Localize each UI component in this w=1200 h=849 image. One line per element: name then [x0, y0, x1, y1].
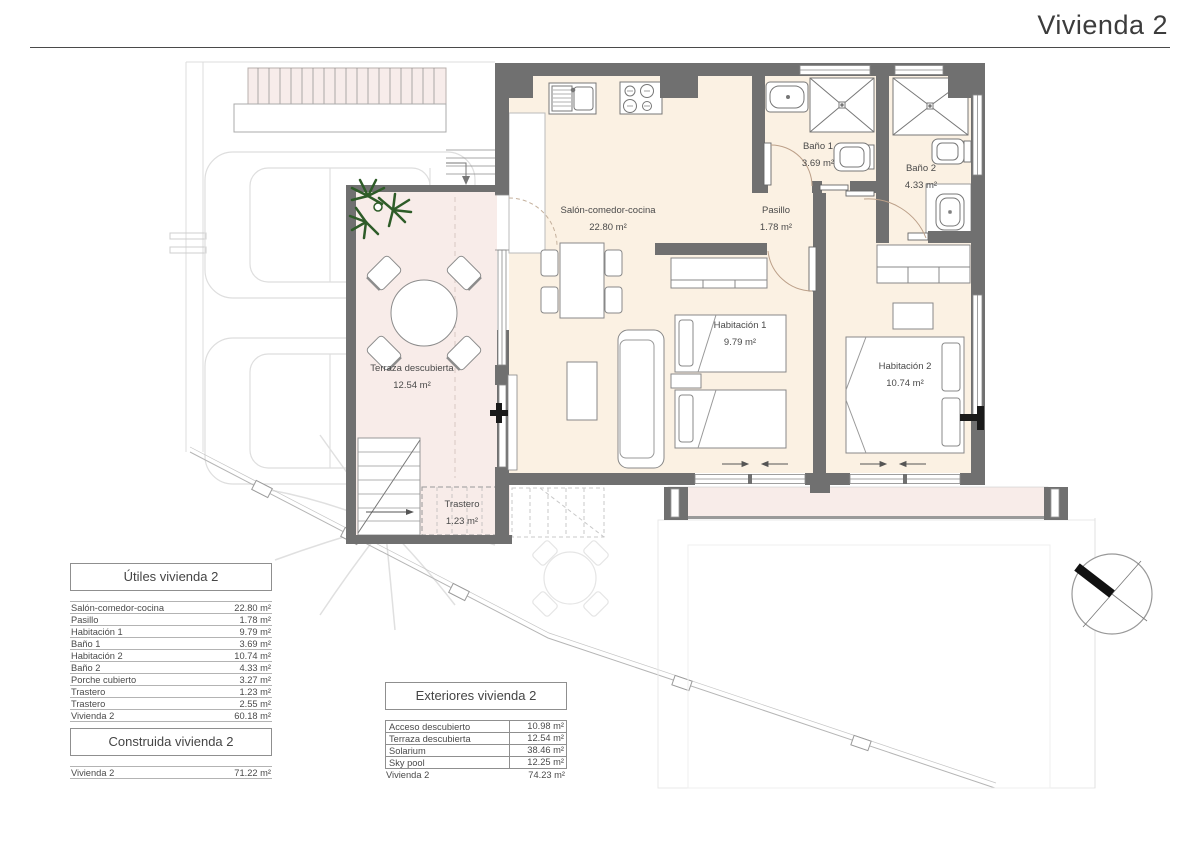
table-row: Baño 24.33 m²	[70, 662, 272, 674]
washbasin-icon	[766, 82, 808, 112]
solarium-outline	[658, 518, 1095, 788]
coffee-table	[567, 362, 597, 420]
table-row: Habitación 19.79 m²	[70, 626, 272, 638]
table-row: Acceso descubierto10.98 m²	[386, 721, 566, 733]
table-row: Sky pool12.25 m²	[386, 757, 566, 768]
exteriores-table: Exteriores vivienda 2 Acceso descubierto…	[385, 682, 567, 781]
shower-icon	[810, 78, 874, 132]
table-row: Vivienda 260.18 m²	[70, 710, 272, 722]
north-arrow-icon	[1072, 554, 1152, 634]
page-title: Vivienda 2	[1037, 10, 1168, 41]
bed	[675, 390, 786, 448]
table-row: Habitación 210.74 m²	[70, 650, 272, 662]
ghost-table-icon	[532, 540, 610, 618]
toilet-icon	[834, 143, 874, 171]
sofa	[618, 330, 664, 468]
stove-icon	[620, 82, 662, 114]
table-row: Terraza descubierta12.54 m²	[386, 733, 566, 745]
room-label-habitacion2: Habitación 210.74 m²	[879, 361, 932, 389]
utiles-table-rows: Salón-comedor-cocina22.80 m² Pasillo1.78…	[70, 601, 272, 722]
title-rule	[30, 47, 1170, 48]
room-label-terraza: Terraza descubierta12.54 m²	[370, 363, 453, 391]
wardrobe	[671, 258, 767, 288]
utiles-table-title: Útiles vivienda 2	[70, 563, 272, 591]
exteriores-total-row: Vivienda 2 74.23 m²	[385, 769, 567, 781]
room-label-bano1: Baño 13.69 m²	[802, 141, 834, 169]
table-row: Pasillo1.78 m²	[70, 614, 272, 626]
table-row: Trastero2.55 m²	[70, 698, 272, 710]
construida-table-title: Construida vivienda 2	[70, 728, 272, 756]
room-label-trastero: Trastero1.23 m²	[444, 499, 479, 527]
table-row: Salón-comedor-cocina22.80 m²	[70, 601, 272, 614]
construida-table-rows: Vivienda 271.22 m²	[70, 766, 272, 779]
wardrobe	[877, 245, 970, 283]
ghost-dashed-area	[512, 488, 604, 537]
table-row: Baño 13.69 m²	[70, 638, 272, 650]
nightstand	[671, 374, 701, 388]
toilet-icon	[932, 139, 971, 164]
table-row: Solarium38.46 m²	[386, 745, 566, 757]
table-row: Trastero1.23 m²	[70, 686, 272, 698]
table-row: Vivienda 271.22 m²	[70, 766, 272, 779]
utiles-table: Útiles vivienda 2 Salón-comedor-cocina22…	[70, 563, 272, 722]
table-row: Porche cubierto3.27 m²	[70, 674, 272, 686]
construida-table: Construida vivienda 2 Vivienda 271.22 m²	[70, 728, 272, 779]
washbasin-icon	[926, 184, 971, 238]
room-label-habitacion1: Habitación 19.79 m²	[714, 320, 767, 348]
room-label-salon: Salón-comedor-cocina22.80 m²	[560, 205, 655, 233]
floor-plan-page: Vivienda 2 Salón-comedor-cocina22.80 m² …	[0, 0, 1200, 849]
sink-icon	[549, 83, 596, 114]
exteriores-table-title: Exteriores vivienda 2	[385, 682, 567, 710]
room-label-pasillo: Pasillo1.78 m²	[760, 205, 792, 233]
terrace-stairs	[358, 438, 420, 535]
exteriores-table-rows: Acceso descubierto10.98 m² Terraza descu…	[385, 720, 567, 769]
room-label-bano2: Baño 24.33 m²	[905, 163, 937, 191]
